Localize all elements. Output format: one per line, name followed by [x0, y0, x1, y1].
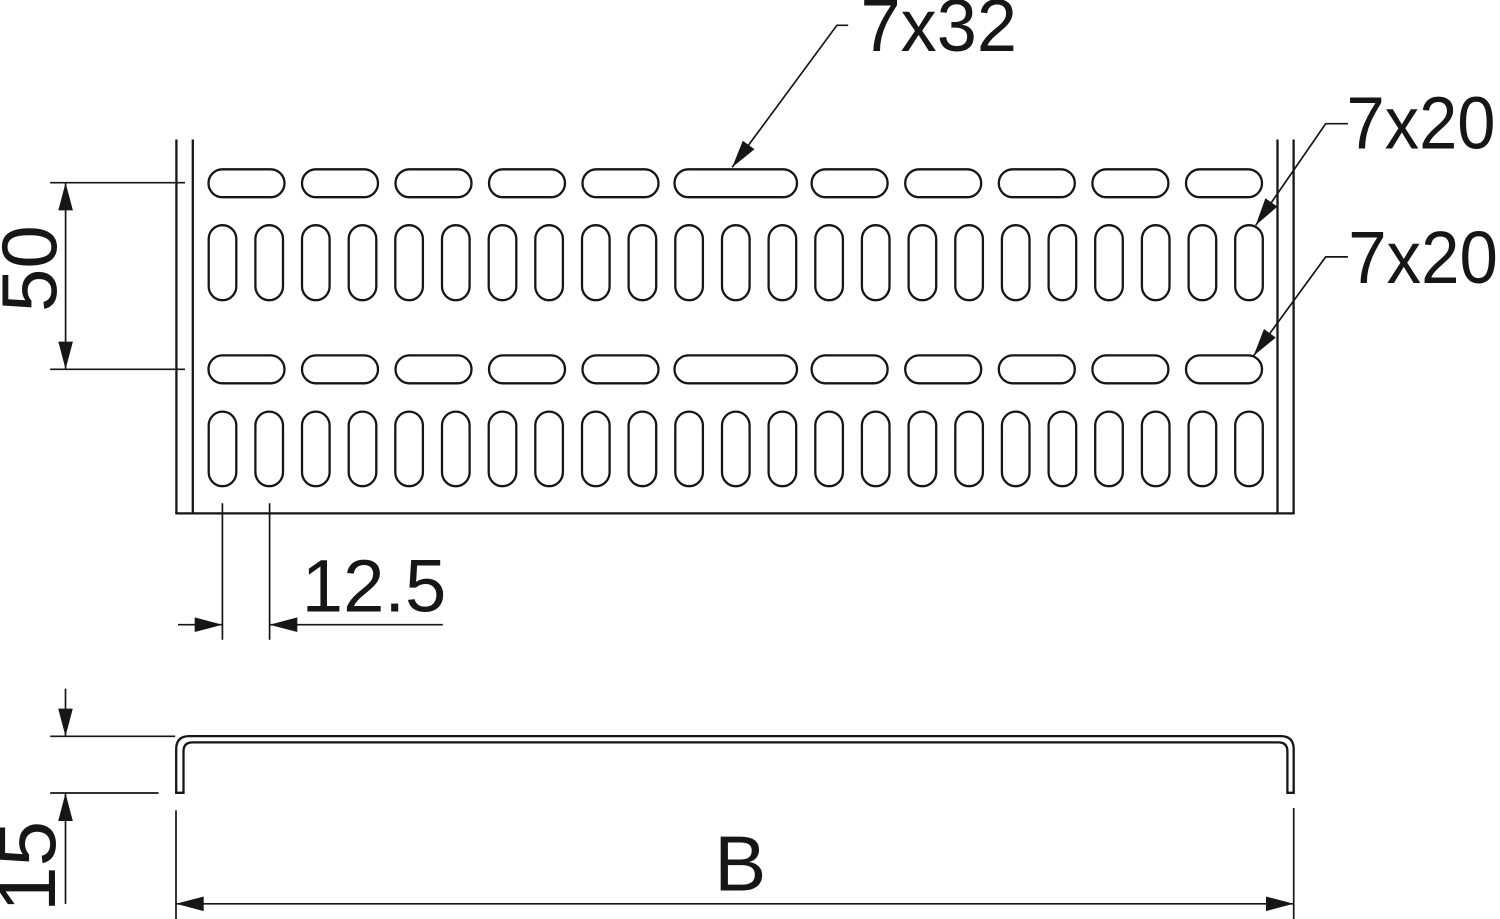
svg-text:7x20: 7x20 [1348, 216, 1498, 299]
svg-text:7x32: 7x32 [861, 0, 1018, 67]
svg-text:15: 15 [0, 821, 73, 912]
svg-text:50: 50 [0, 225, 73, 312]
svg-text:7x20: 7x20 [1347, 82, 1496, 165]
svg-text:B: B [714, 819, 766, 907]
svg-text:12.5: 12.5 [302, 544, 447, 627]
